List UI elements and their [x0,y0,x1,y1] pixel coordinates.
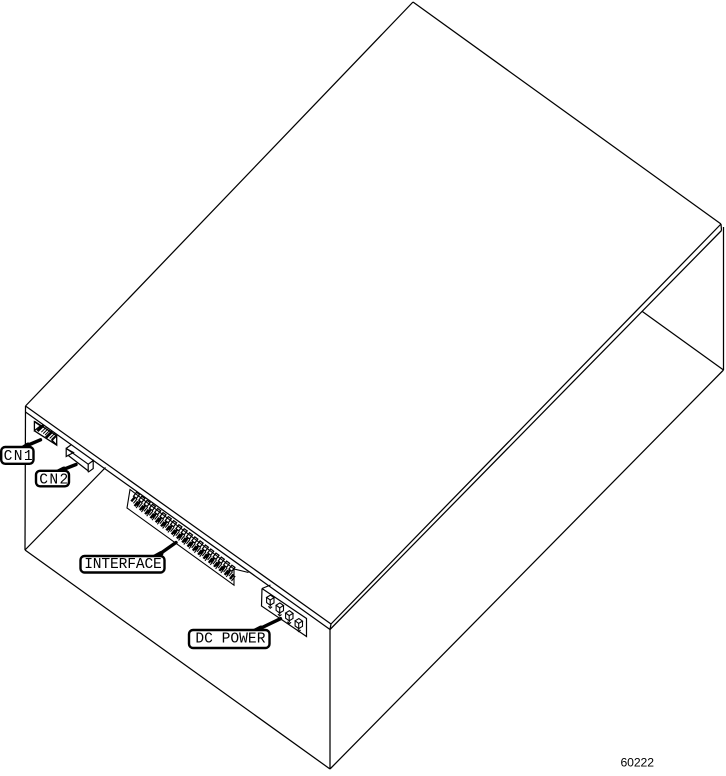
svg-text:INTERFACE: INTERFACE [84,557,161,573]
svg-text:60222: 60222 [621,755,655,769]
svg-text:CN2: CN2 [39,473,69,489]
svg-text:DC POWER: DC POWER [195,631,265,647]
svg-text:CN1: CN1 [4,449,34,465]
